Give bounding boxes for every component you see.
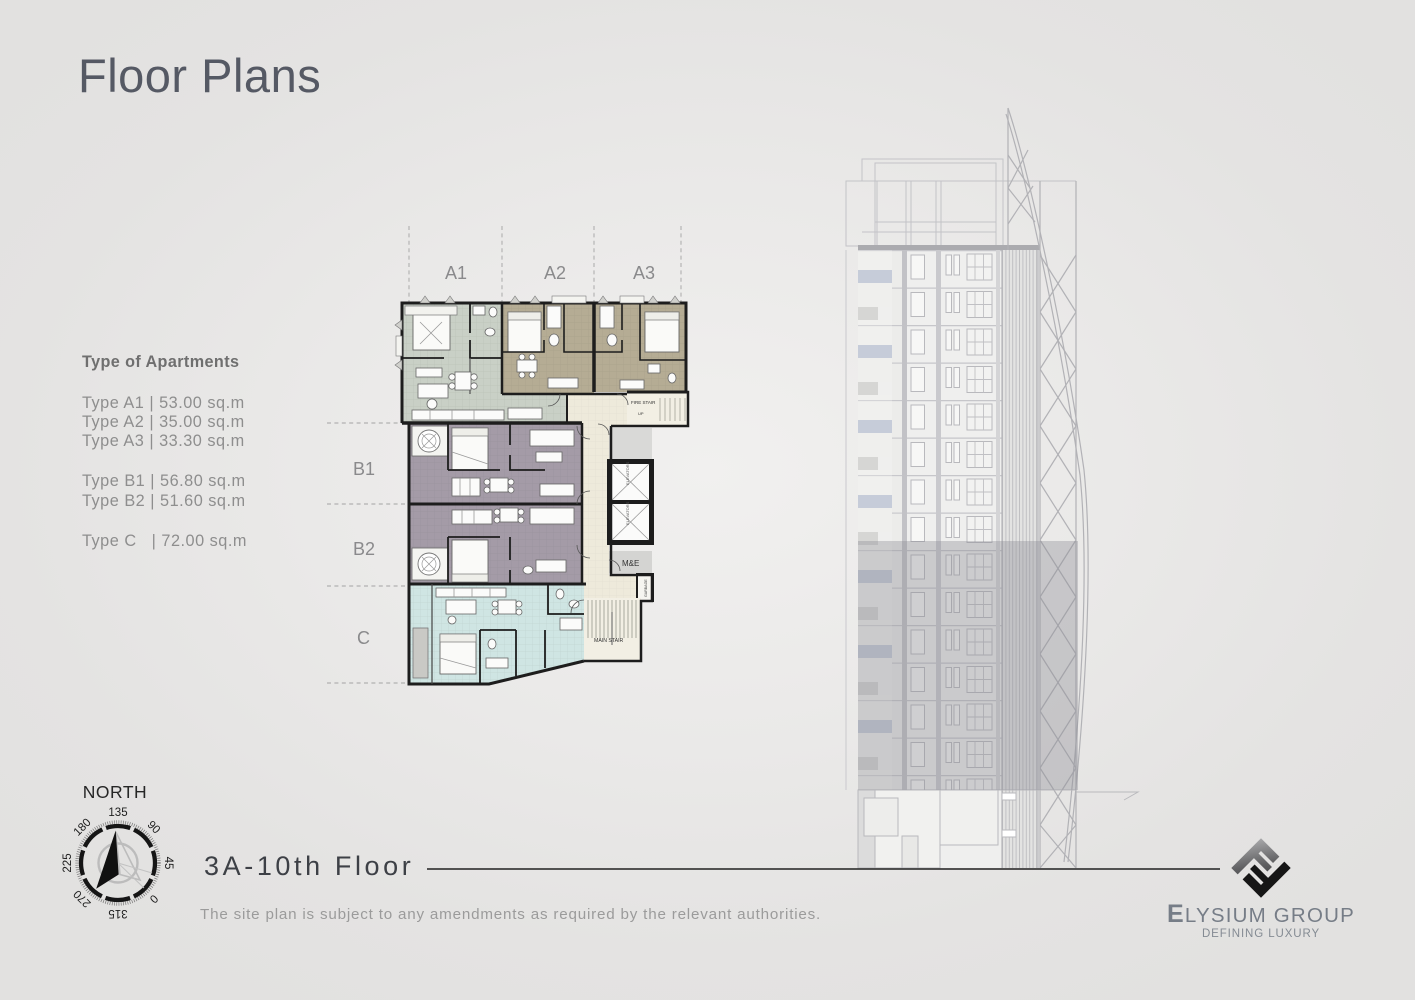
svg-text:ELYSIUM GROUP: ELYSIUM GROUP xyxy=(1167,900,1355,928)
svg-text:Type B1 | 56.80 sq.m: Type B1 | 56.80 sq.m xyxy=(82,472,246,490)
svg-text:B2: B2 xyxy=(353,539,375,559)
svg-text:FIRE STAIR: FIRE STAIR xyxy=(631,400,656,405)
svg-text:Type C | 72.00 sq.m: Type C | 72.00 sq.m xyxy=(82,532,247,550)
svg-text:MAIN STAIR: MAIN STAIR xyxy=(594,638,624,644)
svg-text:Type A1 | 53.00 sq.m: Type A1 | 53.00 sq.m xyxy=(82,394,245,412)
svg-text:A2: A2 xyxy=(544,263,566,283)
svg-text:A3: A3 xyxy=(633,263,655,283)
svg-text:ELEVATORS: ELEVATORS xyxy=(625,501,630,525)
svg-text:Floor Plans: Floor Plans xyxy=(78,49,321,102)
svg-text:NORTH: NORTH xyxy=(83,782,147,802)
svg-text:45: 45 xyxy=(162,857,174,870)
svg-text:0: 0 xyxy=(147,892,160,905)
svg-text:Type of Apartments: Type of Apartments xyxy=(82,353,239,371)
svg-text:315: 315 xyxy=(108,907,127,919)
svg-text:ELEVATORS: ELEVATORS xyxy=(625,461,630,485)
svg-text:B1: B1 xyxy=(353,459,375,479)
svg-text:135: 135 xyxy=(108,807,127,819)
svg-text:UP: UP xyxy=(638,411,644,416)
svg-text:Type A2 | 35.00 sq.m: Type A2 | 35.00 sq.m xyxy=(82,413,245,431)
svg-text:GARBAGE: GARBAGE xyxy=(644,579,648,597)
svg-text:The site plan is subject to an: The site plan is subject to any amendmen… xyxy=(200,906,821,923)
svg-text:C: C xyxy=(357,628,370,648)
svg-text:Type A3 | 33.30 sq.m: Type A3 | 33.30 sq.m xyxy=(82,432,245,450)
svg-text:DEFINING LUXURY: DEFINING LUXURY xyxy=(1202,928,1320,940)
svg-text:Type B2 | 51.60 sq.m: Type B2 | 51.60 sq.m xyxy=(82,492,246,510)
svg-text:M&E: M&E xyxy=(622,559,639,568)
svg-text:3A-10th Floor: 3A-10th Floor xyxy=(204,851,414,881)
svg-text:225: 225 xyxy=(62,853,74,872)
svg-text:A1: A1 xyxy=(445,263,467,283)
